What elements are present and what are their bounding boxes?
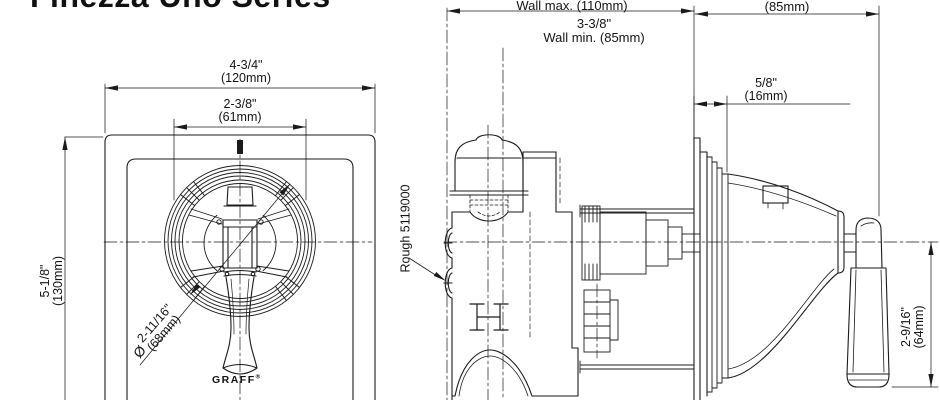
dim-wall-min-in: 3-3/8"	[577, 17, 611, 30]
sleeve-arc-left	[204, 215, 217, 270]
hot-cold-symbol	[470, 304, 508, 330]
page-title: Finezza Uno Series	[30, 0, 331, 15]
front-view-drawing	[62, 84, 375, 400]
dim-plate-height-mm: (130mm)	[52, 216, 65, 346]
side-view-arrowheads	[434, 8, 934, 387]
rough-valve-label: Rough 5119000	[400, 174, 413, 284]
dim-plate-width: 4-3/4" (120mm)	[221, 59, 271, 85]
dim-plate-offset: 5/8" (16mm)	[744, 77, 787, 103]
side-reference-lines	[444, 8, 938, 400]
valve-thread-connector	[470, 195, 508, 216]
spec-sheet-page: { "title": "Finezza Uno Series", "brand"…	[0, 0, 940, 400]
valve-dome-cap	[450, 135, 528, 195]
trumpet-escutcheon	[728, 174, 844, 378]
dim-plate-width-mm: (120mm)	[221, 72, 271, 85]
dim-plate-offset-mm: (16mm)	[744, 90, 787, 103]
dim-projection-mm: (85mm)	[765, 0, 810, 13]
dim-handle-drop-mm: (64mm)	[913, 277, 926, 377]
registered-mark: ®	[256, 375, 260, 381]
side-view-drawing	[409, 6, 938, 400]
valve-cartridge	[582, 206, 700, 352]
dim-escutcheon-width: 2-3/8" (61mm)	[218, 98, 261, 124]
lever-handle-side	[844, 218, 889, 387]
brand-logo-text: GRAFF	[212, 374, 256, 386]
brand-logo: GRAFF®	[212, 374, 260, 386]
dim-handle-drop: 2-9/16" (64mm)	[900, 277, 926, 377]
dim-escutcheon-width-mm: (61mm)	[218, 111, 261, 124]
rough-valve-body	[444, 152, 578, 400]
sleeve-arc-right	[263, 215, 276, 270]
dim-wall-max: Wall max. (110mm)	[516, 0, 627, 12]
wall-plate	[694, 138, 728, 400]
diverter-button	[763, 186, 788, 203]
dim-plate-height: 5-1/8" (130mm)	[39, 216, 65, 346]
dim-wall-min: Wall min. (85mm)	[543, 31, 644, 44]
